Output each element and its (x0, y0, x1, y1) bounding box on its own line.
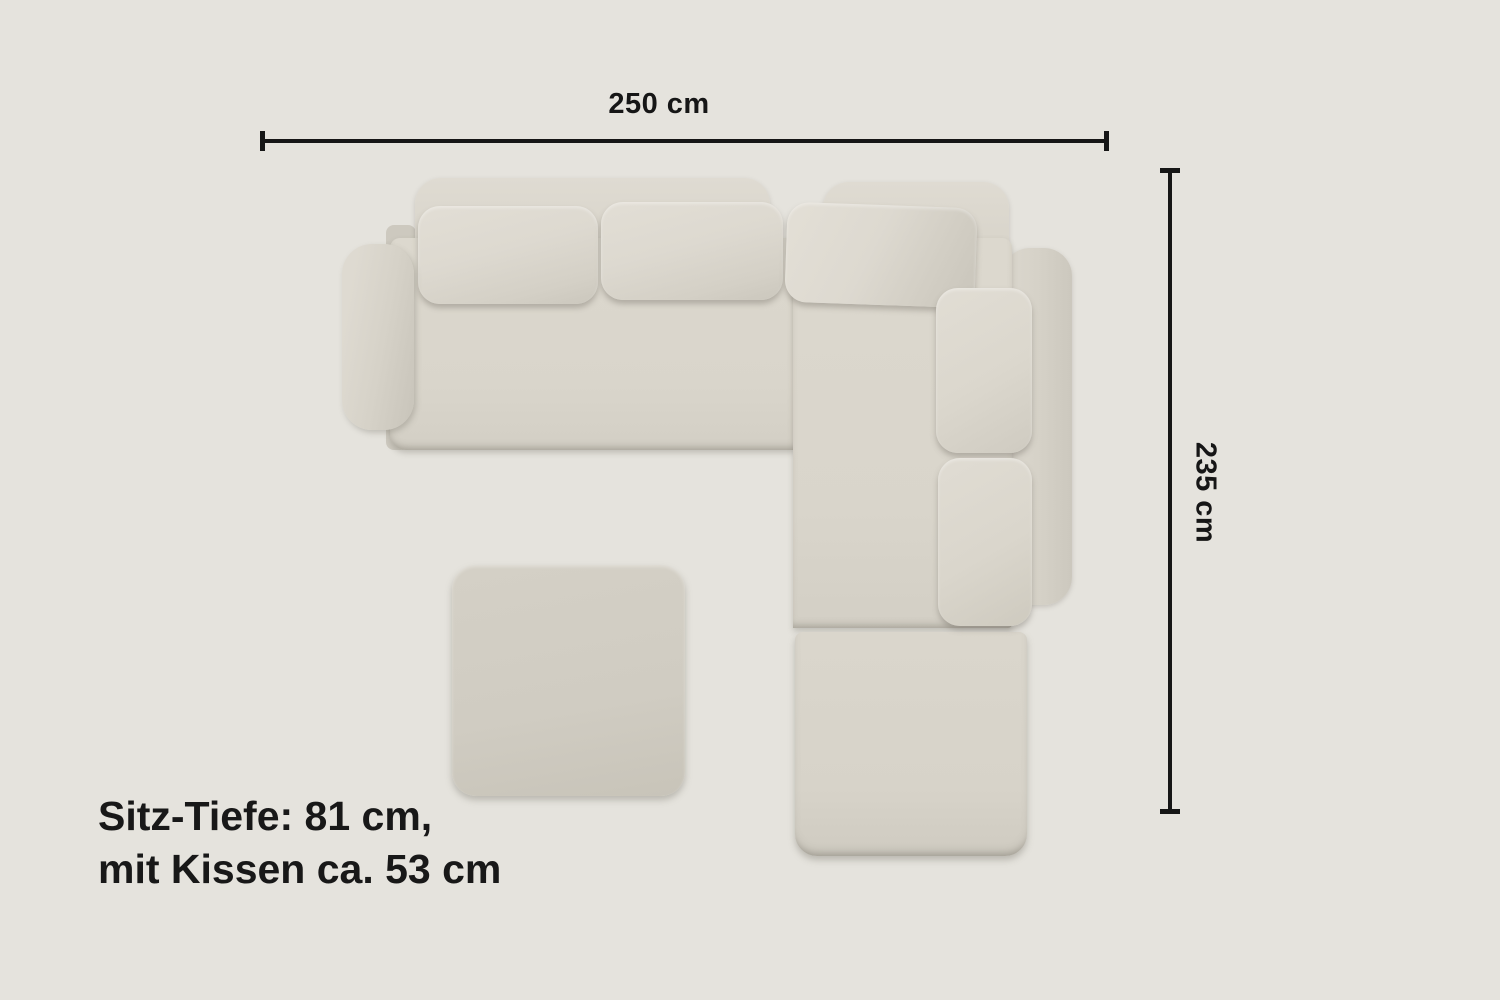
height-dimension-label: 235 cm (1189, 393, 1222, 593)
width-dimension-endcap-right (1104, 131, 1109, 151)
left-armrest (342, 244, 414, 430)
right-back-cushion-2 (938, 458, 1032, 626)
end-seat-module (795, 632, 1027, 856)
height-dimension-endcap-bottom (1160, 809, 1180, 814)
right-back-cushion-1 (936, 288, 1032, 453)
width-dimension-label: 250 cm (559, 88, 759, 121)
ottoman (452, 565, 685, 796)
seat-depth-caption-line2: mit Kissen ca. 53 cm (98, 843, 698, 896)
height-dimension-line (1168, 170, 1172, 812)
seat-depth-caption-line1: Sitz-Tiefe: 81 cm, (98, 790, 698, 843)
seat-depth-caption: Sitz-Tiefe: 81 cm, mit Kissen ca. 53 cm (98, 790, 698, 897)
width-dimension-endcap-left (260, 131, 265, 151)
back-cushion-1 (418, 206, 598, 304)
height-dimension-endcap-top (1160, 168, 1180, 173)
width-dimension-line (263, 139, 1108, 143)
back-cushion-2 (601, 202, 783, 300)
